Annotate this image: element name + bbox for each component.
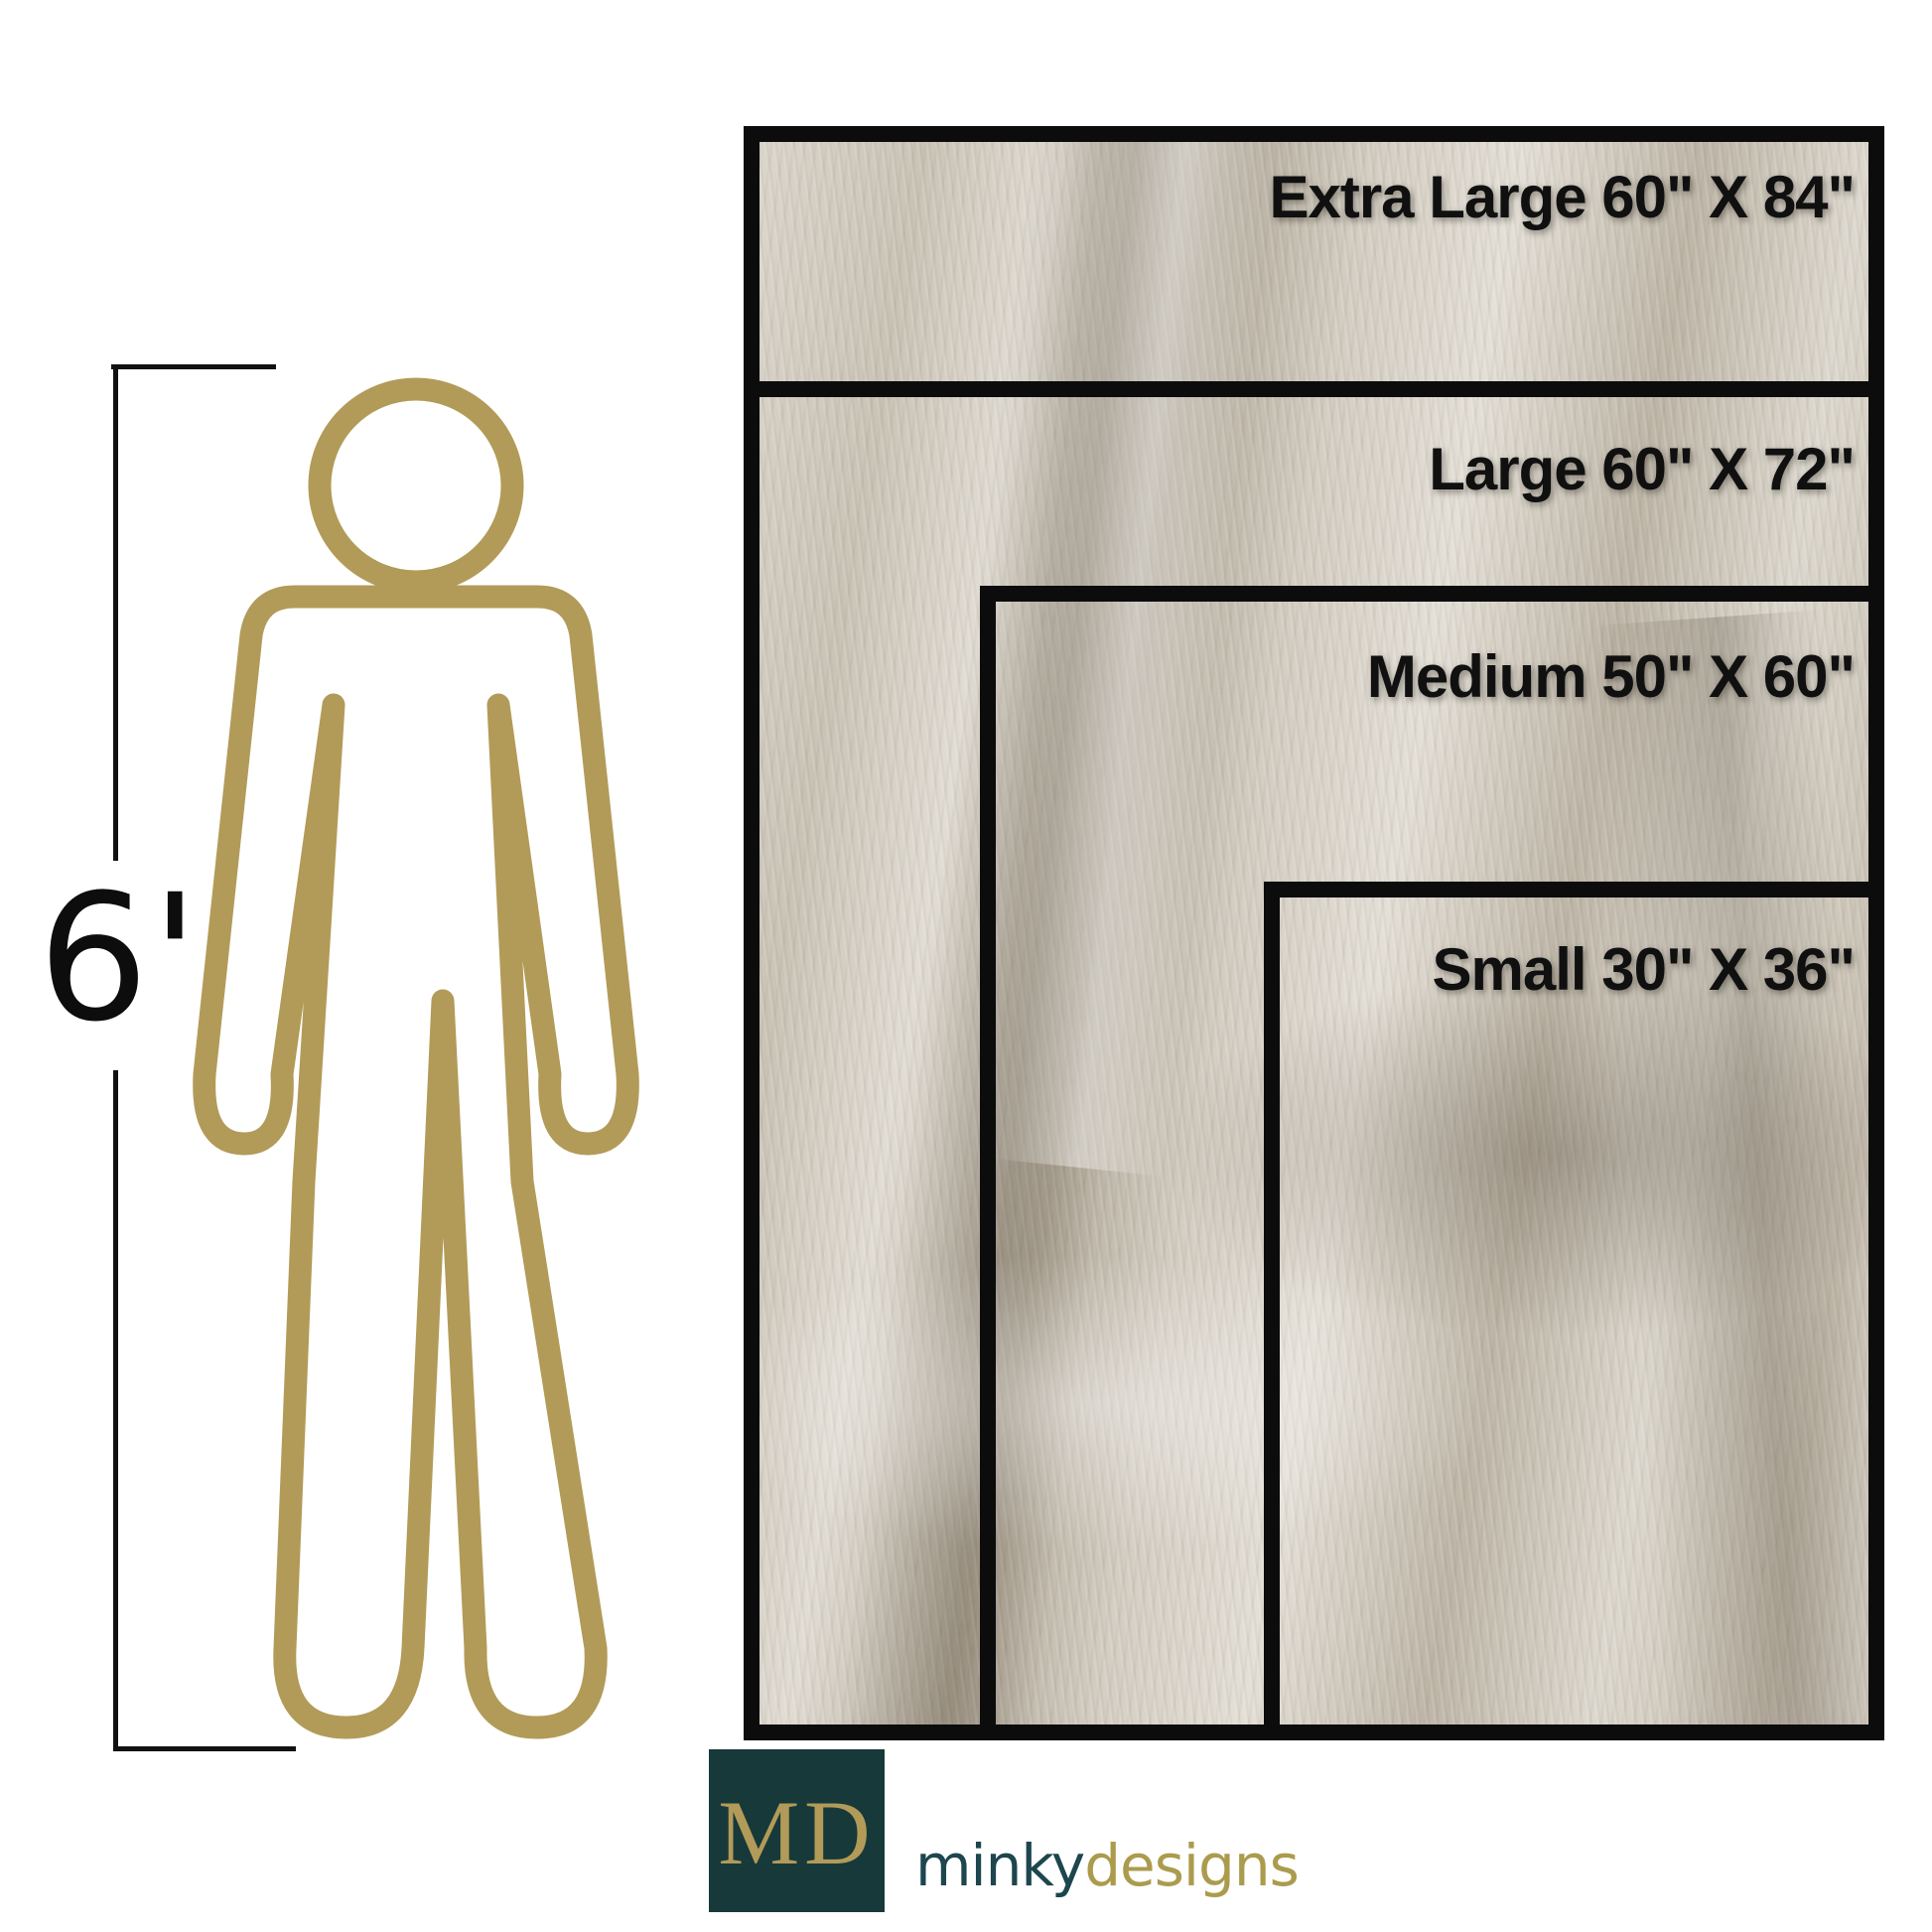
size-label-small: Small 30" X 36" [1433, 939, 1855, 1001]
large-box-top-border [759, 381, 1868, 397]
bracket-line-upper [113, 364, 118, 861]
brand-wordmark-designs: designs [1084, 1832, 1299, 1899]
bracket-line-lower [113, 1070, 118, 1749]
person-body [205, 597, 628, 1727]
brand-wordmark-minky: minky [915, 1832, 1084, 1899]
brand-monogram: MD [718, 1787, 875, 1878]
small-size-box [1264, 882, 1868, 1725]
size-label-medium: Medium 50" X 60" [1367, 646, 1855, 708]
minky-fabric-photo: Extra Large 60" X 84" Large 60" X 72" Me… [759, 142, 1868, 1725]
size-label-large: Large 60" X 72" [1429, 439, 1855, 500]
size-guide-infographic: 6' Extra Large 60" X 84" Large 6 [0, 0, 1932, 1932]
person-icon [169, 365, 665, 1747]
size-comparison-board: Extra Large 60" X 84" Large 60" X 72" Me… [744, 126, 1884, 1740]
size-label-extra-large: Extra Large 60" X 84" [1269, 167, 1855, 228]
brand-wordmark: minkydesigns [915, 1837, 1299, 1894]
brand-logo-square: MD [709, 1749, 885, 1912]
person-head [320, 389, 512, 582]
